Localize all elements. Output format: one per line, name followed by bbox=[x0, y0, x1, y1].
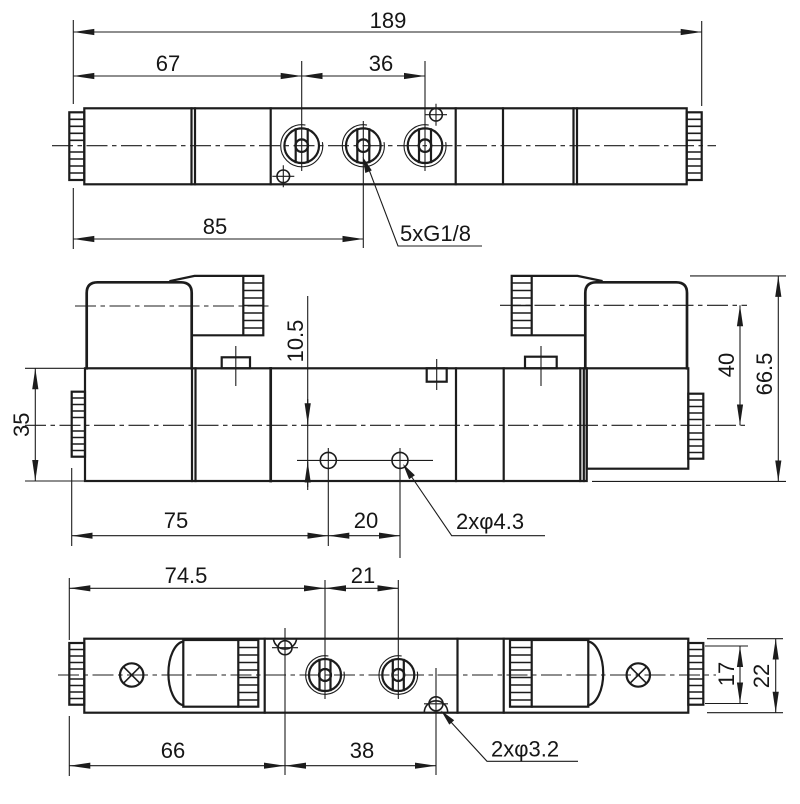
solenoid-left-ribs bbox=[238, 648, 258, 701]
top-tab-right bbox=[525, 346, 557, 386]
valve-dimension-drawing: 189 67 36 85 5xG1/8 bbox=[0, 0, 800, 804]
end-cap-right-ribs bbox=[688, 650, 703, 699]
pilot-cap-right bbox=[688, 394, 703, 459]
dim-label-17: 17 bbox=[714, 662, 739, 686]
solenoid-right-bottom bbox=[510, 640, 603, 707]
dim-label-38: 38 bbox=[350, 738, 374, 763]
dim-40: 40 bbox=[714, 305, 740, 425]
end-cap-right bbox=[688, 643, 703, 705]
dim-label-85: 85 bbox=[203, 214, 227, 239]
dim-label-35: 35 bbox=[9, 412, 34, 436]
dim-label-21: 21 bbox=[351, 563, 375, 588]
callout-mounting-holes: 2xφ4.3 bbox=[403, 464, 545, 536]
dim-label-74-5: 74.5 bbox=[165, 563, 208, 588]
solenoid-coil-right bbox=[585, 282, 687, 368]
callout-screw-holes: 2xφ3.2 bbox=[441, 711, 578, 762]
dim-label-36: 36 bbox=[369, 51, 393, 76]
dim-17: 17 bbox=[705, 646, 748, 704]
pilot-cap-left-ribs bbox=[72, 398, 85, 451]
body-section-dividers bbox=[192, 368, 584, 481]
end-cap-left bbox=[69, 643, 84, 705]
top-view: 189 67 36 85 5xG1/8 bbox=[52, 8, 716, 249]
dim-35: 35 bbox=[9, 368, 85, 481]
leader-arrow bbox=[363, 157, 372, 173]
dim-74-5: 74.5 bbox=[69, 563, 325, 699]
dim-67: 67 bbox=[73, 51, 301, 171]
pilot-cap-right-ribs bbox=[688, 400, 703, 453]
mounting-holes-label: 2xφ4.3 bbox=[456, 509, 524, 534]
dim-overall-189: 189 bbox=[73, 8, 701, 249]
dim-label-66-5: 66.5 bbox=[752, 353, 777, 396]
pilot-block-right bbox=[587, 368, 689, 468]
pilot-cap-left bbox=[72, 392, 85, 457]
solenoid-right-ribs bbox=[510, 648, 532, 701]
screw-holes-label: 2xφ3.2 bbox=[491, 737, 559, 762]
dim-label-75: 75 bbox=[164, 508, 188, 533]
body-section-dividers bbox=[265, 639, 504, 713]
callout-ports: 5xG1/8 bbox=[363, 157, 482, 246]
top-tab-left bbox=[222, 346, 250, 386]
dim-label-20: 20 bbox=[354, 508, 378, 533]
dim-label-10-5: 10.5 bbox=[283, 320, 308, 363]
connector-right-ribs bbox=[512, 283, 532, 328]
technical-drawing-canvas: 189 67 36 85 5xG1/8 bbox=[0, 0, 800, 804]
ports-thread-label: 5xG1/8 bbox=[400, 221, 471, 246]
dim-label-22: 22 bbox=[749, 664, 774, 688]
screw-hole-upper-right bbox=[425, 104, 447, 126]
solenoid-left-bottom bbox=[168, 640, 258, 707]
solenoid-coil-left bbox=[87, 282, 192, 368]
end-cap-left-ribs bbox=[69, 650, 84, 699]
dim-20: 20 bbox=[328, 508, 400, 536]
dim-label-40: 40 bbox=[714, 353, 739, 377]
dim-label-189: 189 bbox=[370, 8, 407, 33]
dim-label-67: 67 bbox=[156, 51, 180, 76]
leader-arrow bbox=[403, 464, 415, 479]
connector-left-ribs bbox=[243, 283, 263, 328]
dim-label-66: 66 bbox=[161, 738, 185, 763]
recessed-feature bbox=[427, 359, 447, 390]
dim-21: 21 bbox=[325, 563, 398, 699]
front-view: 35 10.5 75 20 40 66.5 2xφ4. bbox=[9, 276, 786, 558]
mounting-holes bbox=[297, 448, 433, 558]
dim-75: 75 bbox=[72, 468, 329, 546]
valve-body-outline bbox=[84, 108, 686, 184]
bottom-view: 74.5 21 66 38 17 22 bbox=[58, 563, 783, 776]
